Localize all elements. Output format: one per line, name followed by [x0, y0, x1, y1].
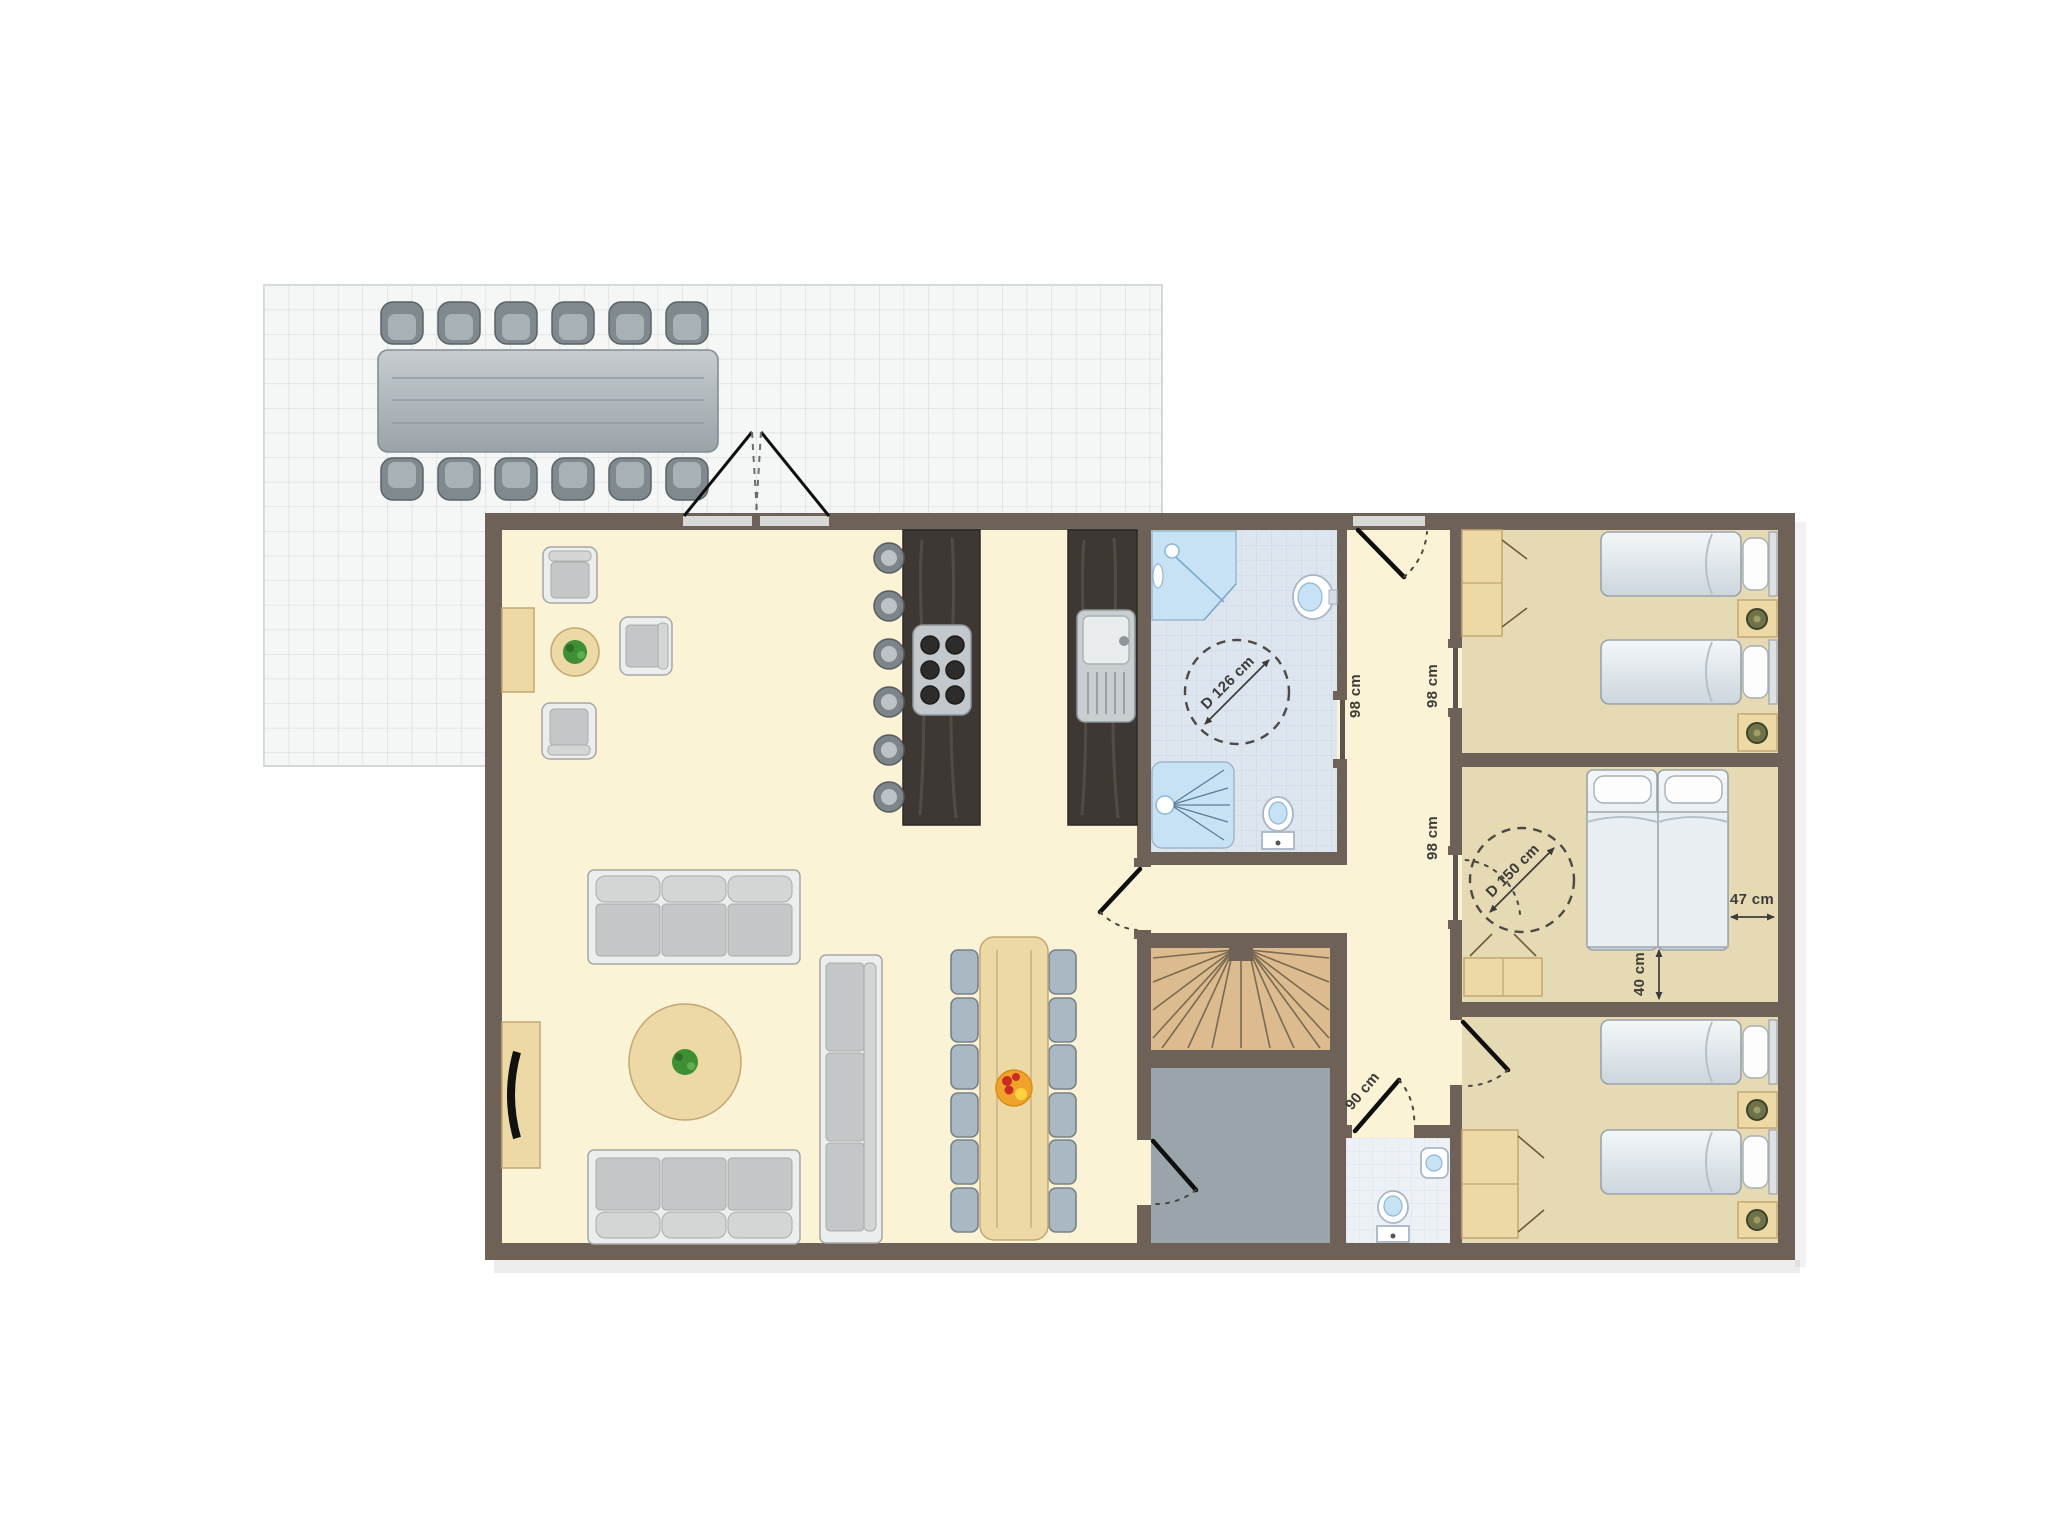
floor-plan-svg: D 126 cm 98 cm 98 cm 98 cm D 150 cm 47 c… [0, 0, 2048, 1536]
terrace-chair [495, 458, 537, 500]
bar-stool [874, 543, 904, 573]
dining-chair [1049, 998, 1076, 1042]
single-bed [1601, 1130, 1777, 1194]
armchair [542, 703, 596, 759]
terrace-chair [552, 302, 594, 344]
bar-stool [874, 735, 904, 765]
armchair [543, 547, 597, 603]
bathroom-door [1340, 700, 1345, 759]
terrace-chair [381, 302, 423, 344]
dining-chair [951, 1188, 978, 1232]
plant [672, 1049, 698, 1075]
dining-chair [951, 998, 978, 1042]
faucet [1119, 636, 1129, 646]
terrace-chair [552, 458, 594, 500]
terrace-chair [609, 458, 651, 500]
terrace-table [378, 350, 718, 452]
stair-newel-wall [1229, 948, 1253, 961]
sofa-top [588, 870, 800, 964]
nightstand [1738, 1202, 1777, 1238]
terrace-chair [495, 302, 537, 344]
dining-chair [951, 950, 978, 994]
dim-label-47: 47 cm [1730, 891, 1774, 908]
dining-chair [1049, 1140, 1076, 1184]
double-bed [1587, 770, 1728, 950]
dim-label-98-bathroom: 98 cm [1347, 674, 1364, 718]
french-door-leaf-left [683, 516, 752, 526]
single-bed [1601, 1020, 1777, 1084]
sideboard [502, 608, 534, 692]
dim-label-98-bedroom1: 98 cm [1424, 664, 1441, 708]
dining-chair [1049, 1188, 1076, 1232]
tv-cabinet [502, 1022, 540, 1168]
terrace-chair [381, 458, 423, 500]
dim-label-40: 40 cm [1631, 952, 1648, 996]
tap [1329, 590, 1337, 604]
building-shadow-bottom [494, 1260, 1800, 1273]
shower-head [1165, 544, 1179, 558]
nightstand [1738, 714, 1777, 751]
terrace-chair [666, 302, 708, 344]
shower-bath [1152, 762, 1234, 848]
bedroom2-door [1453, 855, 1458, 920]
drain [1156, 796, 1174, 814]
dining-chair [951, 1140, 978, 1184]
sofa-bottom [588, 1150, 800, 1244]
dining-table-group [951, 937, 1076, 1240]
kitchen-sink [1077, 610, 1135, 722]
side-table [551, 628, 599, 676]
terrace-chair [438, 458, 480, 500]
floor-plan-page: { "plan": { "type": "floor-plan", "rooms… [0, 0, 2048, 1536]
bar-stool [874, 591, 904, 621]
bathroom-toilet [1262, 797, 1294, 849]
storage-door-opening [1137, 1140, 1151, 1205]
dim-label-98-bedroom2: 98 cm [1424, 816, 1441, 860]
single-bed [1601, 532, 1777, 596]
nightstand [1738, 600, 1777, 637]
sofa-side [820, 955, 882, 1243]
terrace-chair [609, 302, 651, 344]
single-bed [1601, 640, 1777, 704]
terrace-chair [438, 302, 480, 344]
bedroom3-door-opening [1450, 1020, 1462, 1085]
french-door-leaf-right [760, 516, 829, 526]
bar-stool [874, 782, 904, 812]
dining-chair [1049, 1093, 1076, 1137]
fruit-bowl [996, 1070, 1032, 1106]
bedroom1-door [1453, 648, 1458, 708]
dining-chair [1049, 950, 1076, 994]
wc-toilet [1377, 1191, 1409, 1242]
living-door-opening [1137, 867, 1151, 930]
bar-stool [874, 687, 904, 717]
cooktop [913, 625, 971, 715]
coffee-table [629, 1004, 741, 1120]
storage-room-floor [1151, 1068, 1330, 1243]
nightstand [1738, 1092, 1777, 1128]
building-shadow-right [1795, 522, 1806, 1267]
dining-chair [951, 1093, 978, 1137]
bar-stool [874, 639, 904, 669]
wc-sink [1421, 1148, 1448, 1178]
entrance-threshold [1353, 516, 1425, 526]
dining-chair [1049, 1045, 1076, 1089]
armchair [620, 617, 672, 675]
dining-chair [951, 1045, 978, 1089]
